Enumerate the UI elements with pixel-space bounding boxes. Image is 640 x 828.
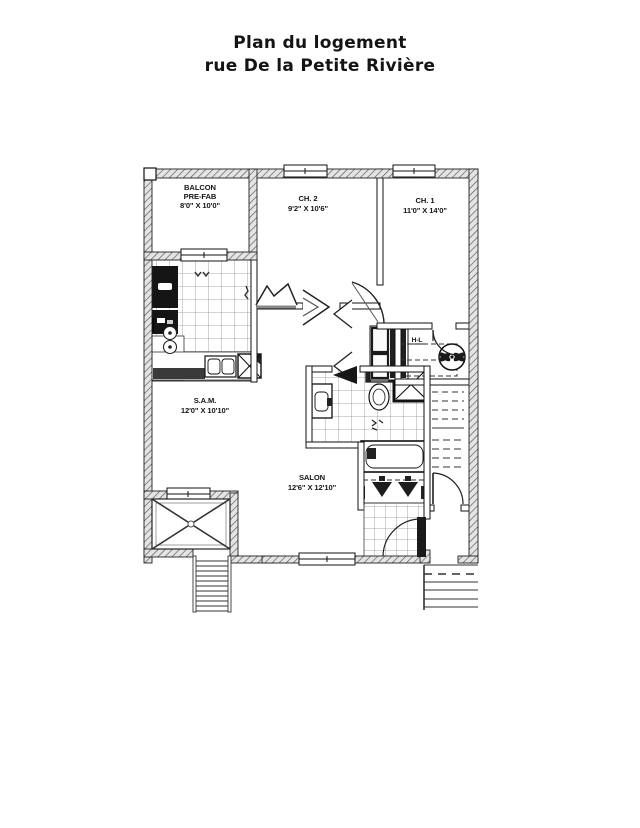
floor-plan-page: Plan du logement rue De la Petite Rivièr… [0, 0, 640, 828]
room-label-balcon: BALCON PRE-FAB 8'0" X 10'0" [180, 183, 221, 210]
svg-text:H-L: H-L [412, 337, 423, 344]
bifold-linen-doors [334, 300, 352, 380]
window-sam [167, 488, 210, 500]
svg-text:CH. 2: CH. 2 [299, 194, 318, 203]
stairwell-opening [152, 499, 230, 549]
interior-stairs [193, 556, 231, 612]
svg-text:CH. 1: CH. 1 [416, 196, 436, 205]
floor-plan-drawing: BALCON PRE-FAB 8'0" X 10'0" CH. 2 9'2" X… [0, 0, 640, 828]
svg-text:PRE-FAB: PRE-FAB [184, 192, 217, 201]
door-arc-corridor [433, 473, 463, 504]
window-balcony [181, 249, 227, 261]
exterior-stairs [424, 565, 478, 610]
room-label-water-heater: H-L [409, 337, 425, 344]
svg-text:8'0" X 10'0": 8'0" X 10'0" [180, 201, 221, 210]
svg-text:S.A.M.: S.A.M. [194, 396, 217, 405]
room-label-ch1: CH. 1 11'0" X 14'0" [403, 196, 447, 215]
kitchen-sink [205, 356, 236, 377]
window-salon [299, 553, 355, 565]
svg-text:11'0" X 14'0": 11'0" X 14'0" [403, 206, 447, 215]
room-label-sam: S.A.M. 12'0" X 10'10" [181, 396, 230, 415]
dishwasher [238, 354, 261, 378]
svg-text:SALON: SALON [299, 473, 325, 482]
window-ch1 [393, 165, 435, 177]
ventilation-fan-icon [438, 344, 466, 370]
closet-hangers [359, 476, 427, 503]
vanity-sink [312, 384, 332, 418]
bifold-closet-door-2 [303, 290, 329, 325]
bathtub [361, 441, 428, 472]
bifold-closet-door [256, 284, 297, 307]
svg-text:12'0" X 10'10": 12'0" X 10'10" [181, 406, 230, 415]
entry-corridor-stairs [432, 392, 464, 467]
refrigerator [152, 266, 178, 308]
room-label-salon: SALON 12'6" X 12'10" [288, 473, 337, 492]
svg-text:12'6" X 12'10": 12'6" X 12'10" [288, 483, 337, 492]
svg-text:9'2" X 10'6": 9'2" X 10'6" [288, 204, 329, 213]
corner-post [144, 168, 156, 180]
room-label-ch2: CH. 2 9'2" X 10'6" [288, 194, 329, 213]
svg-text:BALCON: BALCON [184, 183, 216, 192]
window-ch2 [284, 165, 327, 177]
